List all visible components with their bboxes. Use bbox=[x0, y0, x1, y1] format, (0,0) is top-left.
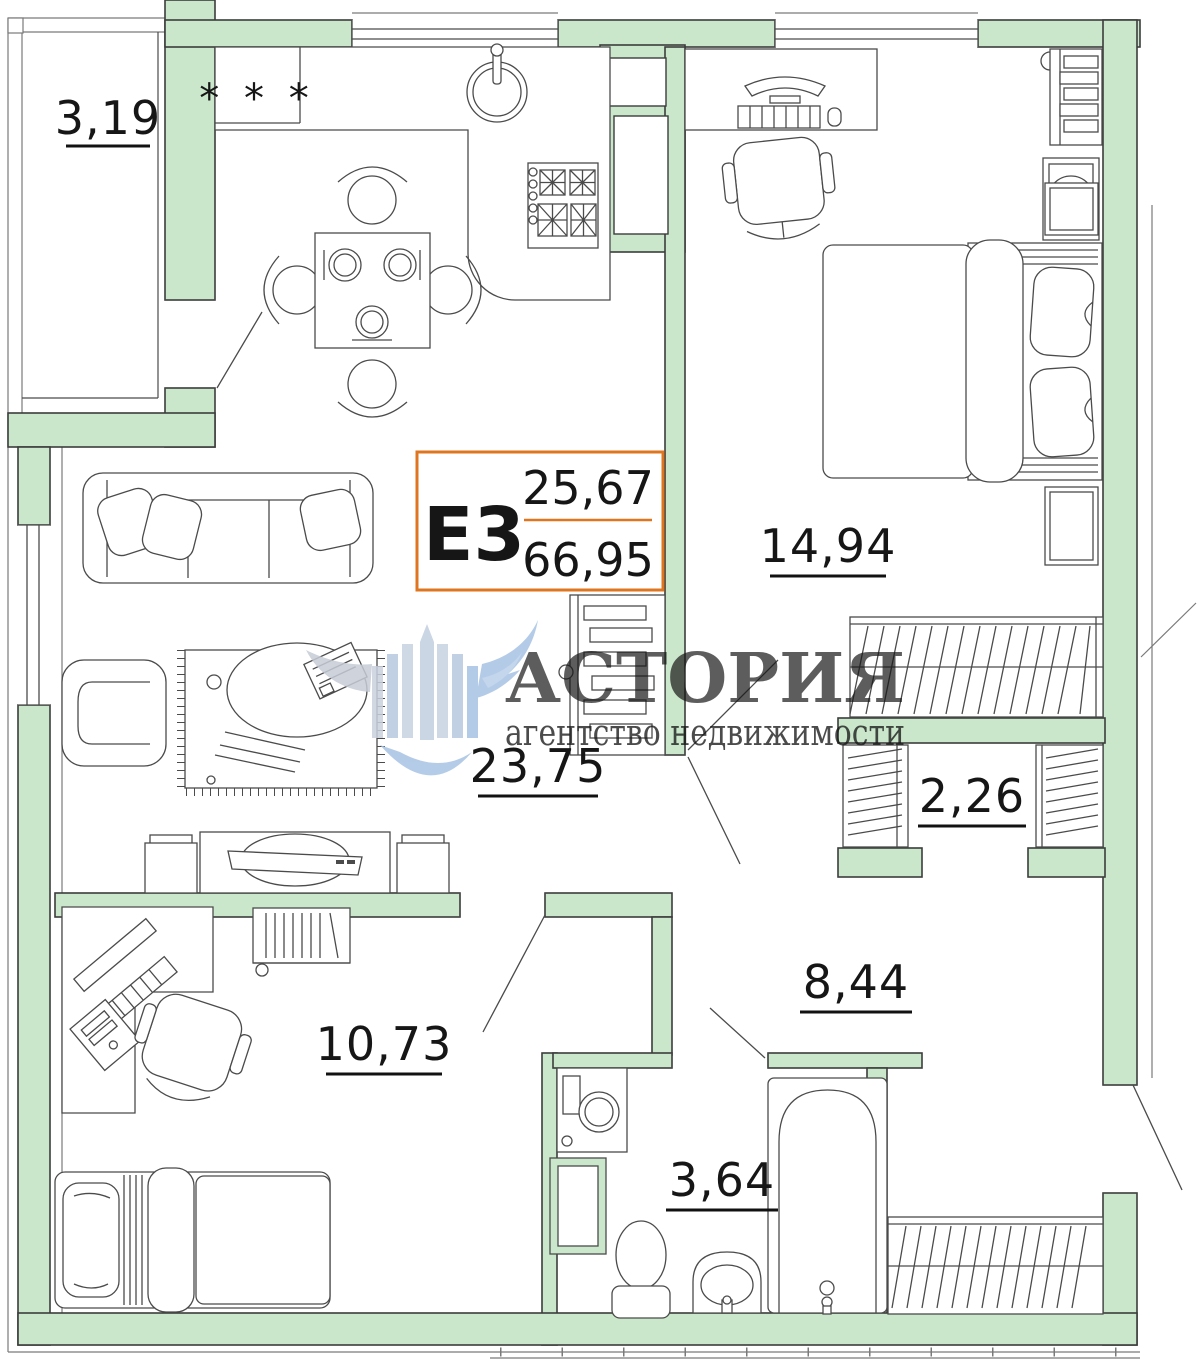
single-bed bbox=[55, 1168, 330, 1312]
window-bedroom bbox=[775, 20, 978, 47]
toilet-icon bbox=[612, 1221, 670, 1318]
label-bedroom: 14,94 bbox=[760, 519, 897, 573]
bathroom-door-swing bbox=[672, 1008, 768, 1068]
office-chair bbox=[720, 134, 840, 244]
entrance-door-swing bbox=[1103, 1085, 1182, 1193]
label-closet: 2,26 bbox=[919, 769, 1025, 823]
label-balcony: 3,19 bbox=[55, 91, 161, 145]
label-bathroom: 3,64 bbox=[669, 1153, 775, 1207]
nightstand bbox=[1045, 487, 1098, 565]
label-bedroom2: 10,73 bbox=[316, 1017, 453, 1071]
ventilation-shafts bbox=[608, 58, 668, 234]
counter-marks: * * * bbox=[199, 76, 314, 122]
duct-box bbox=[550, 1158, 606, 1254]
balcony-door-swing bbox=[165, 300, 262, 388]
tv-stand bbox=[145, 832, 449, 893]
pillow bbox=[63, 1183, 119, 1297]
room2-zone bbox=[55, 907, 350, 1312]
unit-area-living: 25,67 bbox=[522, 461, 654, 515]
pillow bbox=[1029, 266, 1095, 358]
double-bed bbox=[823, 240, 1102, 482]
hallway-wardrobe bbox=[888, 1217, 1103, 1314]
window-living bbox=[18, 525, 50, 705]
sink-basin-icon bbox=[693, 1252, 761, 1313]
balcony bbox=[22, 32, 158, 398]
wardrobe-right bbox=[1036, 745, 1103, 847]
unit-card: Е3 25,67 66,95 bbox=[417, 452, 663, 590]
coffee-table bbox=[227, 642, 367, 737]
watermark-brand: АСТОРИЯ bbox=[505, 639, 905, 719]
stove-icon bbox=[528, 163, 598, 248]
shelf-rack bbox=[1041, 49, 1102, 145]
window-kitchen bbox=[352, 20, 558, 47]
wardrobe-left bbox=[843, 745, 908, 847]
office-chair bbox=[121, 985, 259, 1115]
label-hallway: 8,44 bbox=[803, 955, 909, 1009]
floor-plan: АСТОРИЯ агентство недвижимости 3,19 * * … bbox=[0, 0, 1200, 1361]
washing-machine-icon bbox=[557, 1068, 627, 1152]
unit-area-total: 66,95 bbox=[522, 533, 654, 587]
room2-door-swing bbox=[460, 893, 545, 1032]
bookshelf bbox=[253, 908, 350, 976]
nightstand bbox=[1045, 183, 1098, 235]
bathtub-icon bbox=[768, 1078, 887, 1314]
label-kitchen-living: 23,75 bbox=[470, 739, 607, 793]
bedroom-zone bbox=[685, 49, 1103, 717]
armchair bbox=[62, 660, 166, 766]
floor-plan-drawing: АСТОРИЯ агентство недвижимости 3,19 * * … bbox=[0, 0, 1200, 1361]
unit-code: Е3 bbox=[423, 492, 525, 578]
pillow bbox=[1029, 366, 1095, 458]
dining-table bbox=[264, 167, 481, 417]
sofa bbox=[83, 473, 373, 583]
